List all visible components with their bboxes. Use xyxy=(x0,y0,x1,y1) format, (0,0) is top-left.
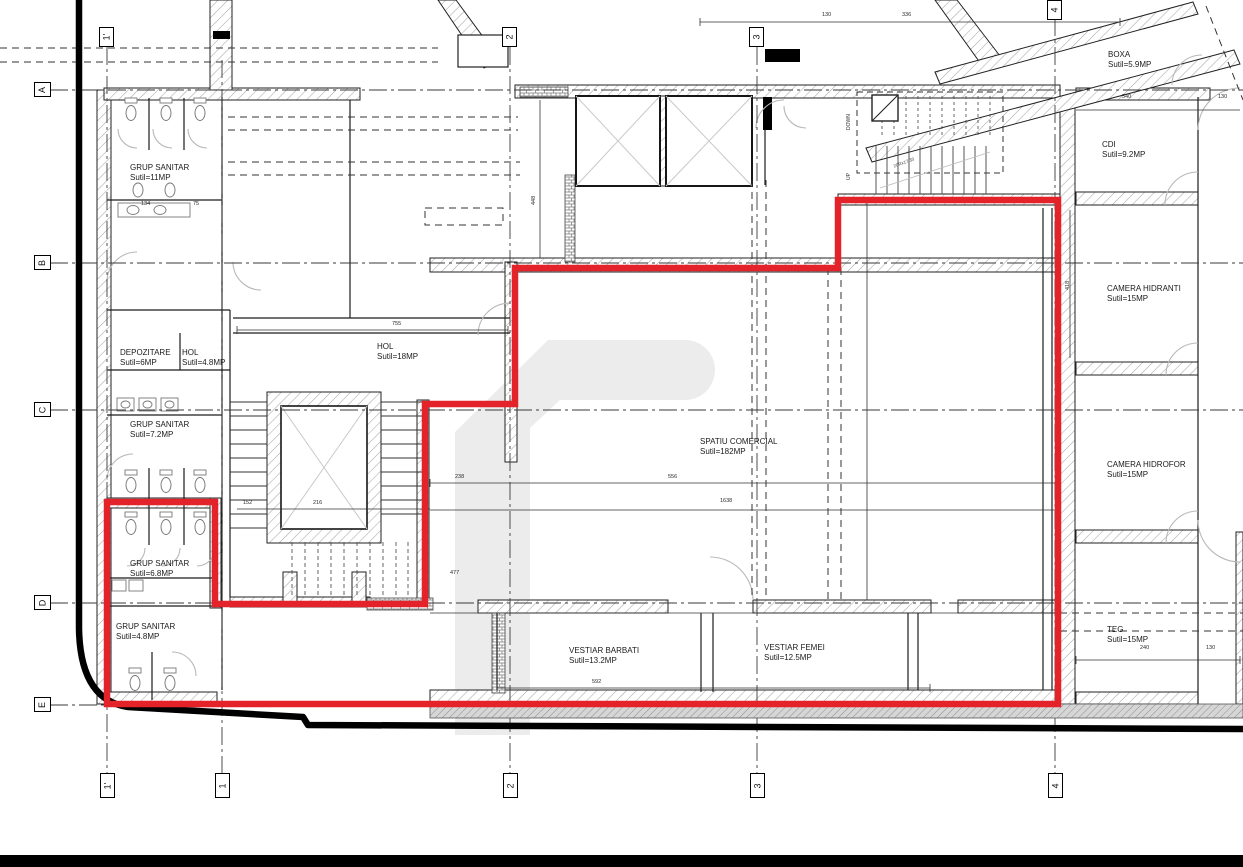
grid-col-marker-3-bottom: 3 xyxy=(750,773,765,798)
dimension-label: 75 xyxy=(193,202,199,208)
room-name: DEPOZITARE xyxy=(120,348,171,358)
room-name: GRUP SANITAR xyxy=(130,559,189,569)
stair-down-label: DOWN xyxy=(846,114,852,130)
room-label-grup-sanitar-68: GRUP SANITAR Sutil=6.8MP xyxy=(130,559,189,580)
dimension-label: 152 xyxy=(243,501,252,507)
floor-plan-canvas: GRUP SANITAR Sutil=11MP DEPOZITARE Sutil… xyxy=(0,0,1243,867)
grid-col-label: 4 xyxy=(1049,7,1059,12)
room-area: Sutil=5.9MP xyxy=(1108,60,1151,70)
grid-col-label: 1' xyxy=(101,34,111,41)
room-area: Sutil=15MP xyxy=(1107,294,1181,304)
grid-col-marker-1-bottom: 1 xyxy=(215,773,230,798)
room-area: Sutil=12.5MP xyxy=(764,653,825,663)
dimension-label: 418 xyxy=(1066,281,1072,290)
grid-row-marker-a: A xyxy=(34,82,51,97)
dimension-label: 130 xyxy=(1206,646,1215,652)
grid-row-label: E xyxy=(37,701,47,707)
room-label-spatiu-comercial: SPATIU COMERCIAL Sutil=182MP xyxy=(700,437,778,458)
room-area: Sutil=18MP xyxy=(377,352,418,362)
dimension-label: 540 xyxy=(1122,95,1131,101)
room-name: GRUP SANITAR xyxy=(116,622,175,632)
room-name: HOL xyxy=(182,348,225,358)
room-name: VESTIAR BARBATI xyxy=(569,646,639,656)
room-name: CAMERA HIDROFOR xyxy=(1107,460,1186,470)
room-area: Sutil=4.8MP xyxy=(116,632,175,642)
grid-col-marker-4-bottom: 4 xyxy=(1048,773,1063,798)
top-detail-box xyxy=(458,35,508,67)
room-label-vestiar-barbati: VESTIAR BARBATI Sutil=13.2MP xyxy=(569,646,639,667)
room-label-camera-hidrofor: CAMERA HIDROFOR Sutil=15MP xyxy=(1107,460,1186,481)
room-label-hol-48: HOL Sutil=4.8MP xyxy=(182,348,225,369)
room-area: Sutil=4.8MP xyxy=(182,358,225,368)
bottom-black-bar xyxy=(0,855,1243,867)
room-area: Sutil=15MP xyxy=(1107,470,1186,480)
stair-up-label: UP xyxy=(846,173,852,180)
grid-col-label: 1 xyxy=(217,783,227,788)
grid-col-label: 4 xyxy=(1050,783,1060,788)
room-area: Sutil=182MP xyxy=(700,447,778,457)
room-name: BOXA xyxy=(1108,50,1151,60)
grid-row-label: C xyxy=(38,406,48,413)
grid-col-label: 3 xyxy=(751,34,761,39)
room-label-teg: TEG Sutil=15MP xyxy=(1107,625,1148,646)
grid-col-label: 3 xyxy=(752,783,762,788)
grid-row-label: A xyxy=(37,86,47,92)
grid-row-marker-e: E xyxy=(34,697,51,712)
room-name: CDI xyxy=(1102,140,1145,150)
room-name: HOL xyxy=(377,342,418,352)
grid-col-label: 1' xyxy=(102,782,112,789)
grid-col-label: 2 xyxy=(505,783,515,788)
grid-row-marker-c: C xyxy=(34,402,51,417)
room-label-grup-sanitar-48: GRUP SANITAR Sutil=4.8MP xyxy=(116,622,175,643)
room-label-hol-18: HOL Sutil=18MP xyxy=(377,342,418,363)
grid-col-marker-1p-bottom: 1' xyxy=(100,773,115,798)
room-label-camera-hidranti: CAMERA HIDRANTI Sutil=15MP xyxy=(1107,284,1181,305)
room-name: GRUP SANITAR xyxy=(130,420,189,430)
dimension-label: 448 xyxy=(532,196,538,205)
dimension-label: 755 xyxy=(392,322,401,328)
dimension-label: 130 xyxy=(1218,95,1227,101)
grid-col-marker-4-top: 4 xyxy=(1047,0,1062,20)
room-area: Sutil=9.2MP xyxy=(1102,150,1145,160)
room-label-boxa: BOXA Sutil=5.9MP xyxy=(1108,50,1151,71)
dimension-label: 240 xyxy=(1140,646,1149,652)
grid-col-marker-2-bottom: 2 xyxy=(503,773,518,798)
grid-col-marker-3-top: 3 xyxy=(749,27,764,47)
room-label-cdi: CDI Sutil=9.2MP xyxy=(1102,140,1145,161)
room-name: CAMERA HIDRANTI xyxy=(1107,284,1181,294)
dimension-label: 477 xyxy=(450,571,459,577)
room-label-grup-sanitar-11: GRUP SANITAR Sutil=11MP xyxy=(130,163,189,184)
dimension-label: 592 xyxy=(592,680,601,686)
room-label-grup-sanitar-72: GRUP SANITAR Sutil=7.2MP xyxy=(130,420,189,441)
room-area: Sutil=11MP xyxy=(130,173,189,183)
red-highlight-outline xyxy=(107,200,1058,704)
room-name: GRUP SANITAR xyxy=(130,163,189,173)
room-name: TEG xyxy=(1107,625,1148,635)
grid-col-marker-2-top: 2 xyxy=(502,27,517,47)
dimension-label: 130 xyxy=(822,13,831,19)
grid-row-marker-b: B xyxy=(34,255,51,270)
room-label-depozitare: DEPOZITARE Sutil=6MP xyxy=(120,348,171,369)
room-area: Sutil=7.2MP xyxy=(130,430,189,440)
dimension-label: 216 xyxy=(313,501,322,507)
dimension-label: 1638 xyxy=(720,499,732,505)
dimension-label: 556 xyxy=(668,475,677,481)
room-label-vestiar-femei: VESTIAR FEMEI Sutil=12.5MP xyxy=(764,643,825,664)
grid-row-label: B xyxy=(37,259,47,265)
room-area: Sutil=6MP xyxy=(120,358,171,368)
grid-row-marker-d: D xyxy=(34,595,51,610)
room-name: VESTIAR FEMEI xyxy=(764,643,825,653)
room-name: SPATIU COMERCIAL xyxy=(700,437,778,447)
grid-row-label: D xyxy=(38,599,48,606)
room-area: Sutil=6.8MP xyxy=(130,569,189,579)
grid-col-label: 2 xyxy=(504,34,514,39)
dimension-label: 134 xyxy=(141,202,150,208)
dimension-label: 238 xyxy=(455,475,464,481)
room-area: Sutil=13.2MP xyxy=(569,656,639,666)
grid-col-marker-1p-top: 1' xyxy=(99,27,114,47)
sanitary-fixtures xyxy=(112,98,206,691)
dimension-label: 336 xyxy=(902,13,911,19)
